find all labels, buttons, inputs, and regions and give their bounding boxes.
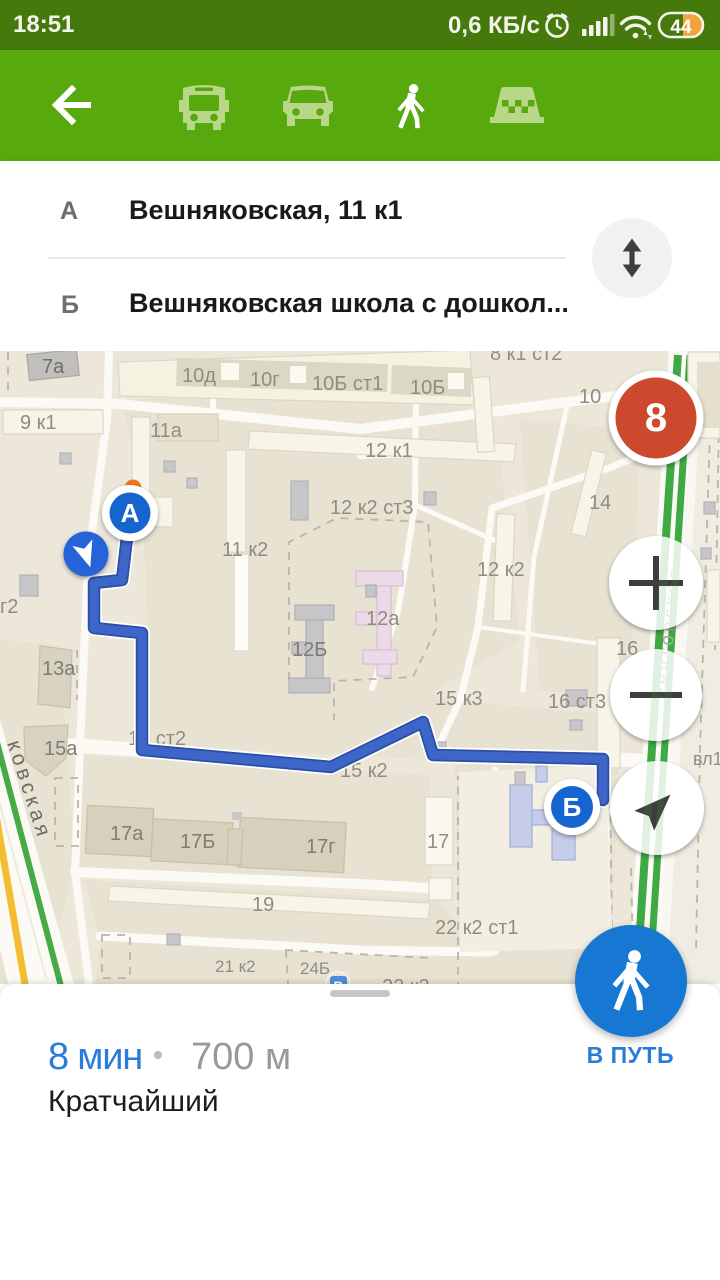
svg-text:44: 44 — [670, 17, 692, 38]
svg-text:24Б: 24Б — [300, 959, 330, 978]
svg-text:11 к2: 11 к2 — [222, 539, 268, 561]
svg-text:22 к2: 22 к2 — [382, 976, 430, 984]
svg-text:12а: 12а — [366, 608, 400, 630]
svg-text:11а: 11а — [150, 420, 183, 442]
svg-text:17а: 17а — [110, 823, 144, 845]
svg-text:16 ст3: 16 ст3 — [548, 691, 606, 713]
svg-text:12 к1: 12 к1 — [365, 440, 413, 462]
svg-text:7а: 7а — [42, 356, 65, 378]
svg-text:8: 8 — [645, 396, 667, 440]
svg-text:10Б ст1: 10Б ст1 — [312, 373, 383, 395]
svg-text:17Б: 17Б — [180, 831, 215, 853]
svg-text:9 к1: 9 к1 — [20, 412, 57, 434]
svg-text:А: А — [121, 498, 140, 528]
svg-text:12Б: 12Б — [292, 639, 327, 661]
svg-text:17г: 17г — [306, 836, 336, 858]
svg-text:13а: 13а — [42, 658, 76, 680]
svg-text:вл1: вл1 — [693, 749, 720, 769]
svg-text:14: 14 — [589, 492, 611, 514]
svg-text:8 к1 ст2: 8 к1 ст2 — [490, 351, 562, 365]
svg-text:15а: 15а — [44, 738, 78, 760]
svg-text:10г: 10г — [250, 369, 280, 391]
svg-text:г2: г2 — [0, 596, 18, 618]
svg-text:19: 19 — [252, 894, 274, 916]
svg-text:12 к2 ст3: 12 к2 ст3 — [330, 497, 414, 519]
svg-text:10Б: 10Б — [410, 377, 445, 399]
svg-text:10: 10 — [579, 386, 601, 408]
svg-text:17: 17 — [427, 831, 449, 853]
svg-text:21 к2: 21 к2 — [215, 957, 256, 976]
svg-text:12 к2: 12 к2 — [477, 559, 525, 581]
svg-text:10д: 10д — [182, 365, 216, 387]
svg-text:22 к2 ст1: 22 к2 ст1 — [435, 917, 519, 939]
svg-text:15 к3: 15 к3 — [435, 688, 483, 710]
svg-text:Б: Б — [563, 792, 582, 822]
